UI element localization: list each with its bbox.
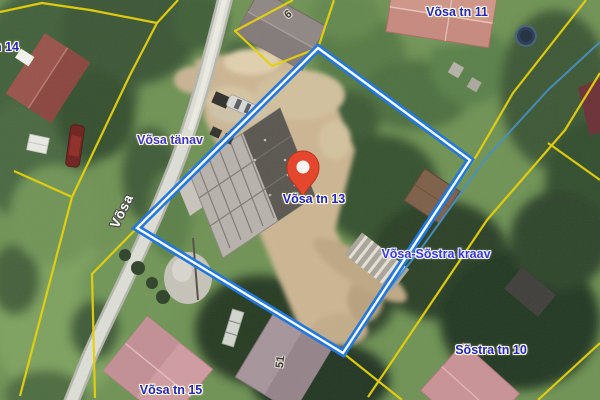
map-canvas[interactable]: n 14 Võsa tn 11 Võsa tn 13 Võsa tn 15 Sõ… bbox=[0, 0, 600, 400]
aerial-imagery bbox=[0, 0, 600, 400]
